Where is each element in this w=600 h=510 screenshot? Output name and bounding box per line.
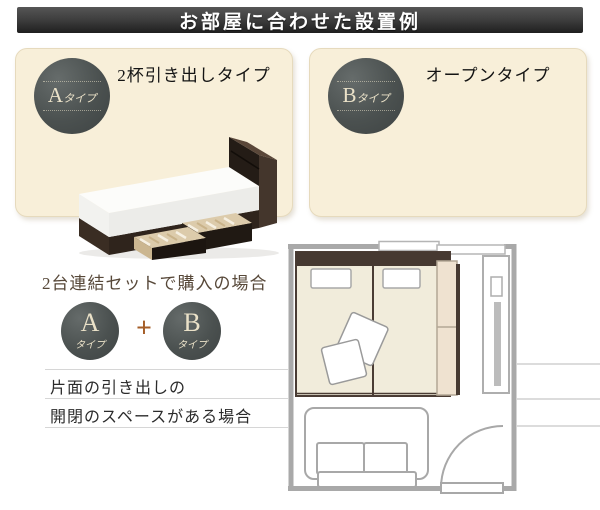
type-a-title: 2杯引き出しタイプ [104, 61, 284, 86]
divider [45, 398, 288, 399]
section-header-bar: お部屋に合わせた設置例 [17, 7, 583, 33]
plan-door-leaf [441, 483, 503, 493]
combo-note-line-1: 片面の引き出しの [50, 374, 186, 398]
combo-circle-a: A タイプ [61, 302, 119, 360]
page: お部屋に合わせた設置例 Aタイプ 2杯引き出しタイプ [0, 0, 600, 510]
plan-headboard [296, 252, 450, 266]
plan-closet [483, 256, 509, 393]
section-title: お部屋に合わせた設置例 [179, 7, 421, 34]
combo-circle-b: B タイプ [163, 302, 221, 360]
plan-door-arc [441, 426, 503, 488]
divider [45, 427, 288, 428]
floor-plan-diagram [280, 233, 600, 505]
plan-dresser [437, 261, 460, 395]
plan-closet-handle [491, 277, 502, 296]
type-a-badge: Aタイプ [34, 58, 110, 134]
plan-pillow-left [311, 269, 351, 288]
type-b-title: オープンタイプ [398, 61, 578, 86]
bed-a-illustration [64, 127, 304, 262]
plus-sign: + [130, 313, 158, 345]
type-b-badge-label: Bタイプ [337, 81, 395, 111]
type-b-card: Bタイプ オープンタイプ [309, 48, 587, 217]
type-a-badge-label: Aタイプ [43, 81, 101, 111]
combo-note-line-2: 開閉のスペースがある場合 [50, 403, 252, 427]
combo-title: 2台連結セットで購入の場合 [42, 269, 268, 294]
plan-door [441, 426, 503, 493]
divider [45, 369, 288, 370]
plan-outside-lines [517, 364, 600, 426]
plan-pillow-right [383, 269, 420, 288]
type-b-badge: Bタイプ [328, 58, 404, 134]
plan-sofa [305, 408, 428, 487]
type-a-card: Aタイプ 2杯引き出しタイプ [15, 48, 293, 217]
